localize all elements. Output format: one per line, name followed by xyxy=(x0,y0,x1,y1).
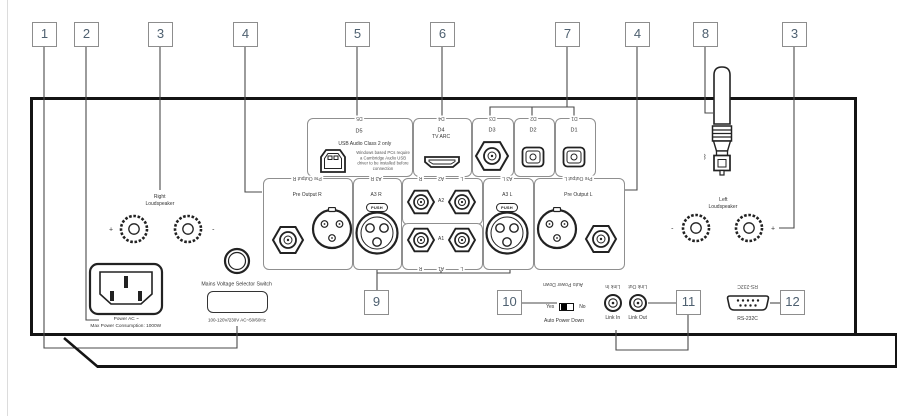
rca-connector-icon xyxy=(271,223,305,257)
coax-rca-connector-icon xyxy=(474,138,510,174)
d5-edge-label: D5 xyxy=(354,116,363,121)
a3-l-push-latch: PUSH xyxy=(496,203,518,212)
link-in-jack-icon xyxy=(602,292,624,314)
link-in-label: Link In xyxy=(606,316,621,321)
voltage-rating-label: 100-120V/230V AC~50/60Hz xyxy=(208,318,266,323)
callout-1: 1 xyxy=(32,22,57,47)
apd-no-label: No xyxy=(579,305,585,310)
d1-label: D1 xyxy=(570,128,577,133)
a1-r-edge-label: R xyxy=(418,266,425,271)
d5-driver-note: Windows based PCs require a Cambridge Au… xyxy=(356,150,410,171)
d5-label: D5 xyxy=(355,129,362,134)
right-speaker-label-2: Loudspeaker xyxy=(146,202,175,207)
rca-connector-icon xyxy=(406,225,436,255)
right-speaker-minus: - xyxy=(212,227,214,232)
binding-post-icon xyxy=(733,212,765,244)
rca-connector-icon xyxy=(584,222,618,256)
rca-connector-icon xyxy=(447,225,477,255)
auto-power-down-switch xyxy=(559,303,574,311)
link-out-edge-label: Link Out xyxy=(627,284,649,289)
right-speaker-plus: + xyxy=(109,227,113,232)
a3-l-label: A3 L xyxy=(502,193,512,198)
a3-r-label: A3 R xyxy=(370,193,381,198)
bluetooth-antenna-icon xyxy=(701,62,745,178)
a1-edge-label: A1 xyxy=(436,266,445,271)
d2-label: D2 xyxy=(529,128,536,133)
left-speaker-label-2: Loudspeaker xyxy=(709,205,738,210)
switch-knob xyxy=(561,304,567,310)
d3-edge-label: D3 xyxy=(487,116,496,121)
callout-4-right: 4 xyxy=(625,22,650,47)
link-out-jack-icon xyxy=(627,292,649,314)
a1-label: A1 xyxy=(438,237,444,242)
d2-edge-label: D2 xyxy=(528,116,537,121)
pre-output-r-edge-label: Pre Output R xyxy=(291,176,323,181)
callout-11: 11 xyxy=(676,290,701,315)
rca-connector-icon xyxy=(447,187,477,217)
pre-output-l-label: Pre Output L xyxy=(564,193,592,198)
rca-connector-icon xyxy=(406,187,436,217)
binding-post-icon xyxy=(172,213,204,245)
a2-r-edge-label: R xyxy=(418,176,425,181)
link-out-label: Link Out xyxy=(629,316,648,321)
d3-label: D3 xyxy=(488,128,495,133)
callout-2: 2 xyxy=(74,22,99,47)
pre-output-r-label: Pre Output R xyxy=(292,193,321,198)
xlr-male-connector-icon xyxy=(535,207,579,251)
a3-r-push-latch: PUSH xyxy=(366,203,388,212)
binding-post-icon xyxy=(680,212,712,244)
fuse-holder-icon xyxy=(223,247,251,275)
callout-12: 12 xyxy=(780,290,805,315)
d1-edge-label: D1 xyxy=(569,116,578,121)
rs232-label: RS-232C xyxy=(738,317,759,322)
pre-output-l-edge-label: Pre Output L xyxy=(562,176,593,181)
xlr-female-connector-icon xyxy=(354,210,400,256)
rs232-db9-connector-icon xyxy=(725,293,771,313)
a2-label: A2 xyxy=(438,199,444,204)
a1-l-edge-label: L xyxy=(459,266,465,271)
apd-yes-label: Yes xyxy=(546,305,554,310)
iec-power-inlet-icon xyxy=(88,262,164,316)
xlr-male-connector-icon xyxy=(310,207,354,251)
left-speaker-label-1: Left xyxy=(719,198,727,203)
power-consumption-label: Max Power Consumption: 1000W xyxy=(91,324,162,329)
a3-l-edge-label: A3 L xyxy=(500,176,513,181)
a3-r-edge-label: A3 R xyxy=(369,176,383,181)
hdmi-connector-icon xyxy=(423,155,461,169)
callout-4-left: 4 xyxy=(233,22,258,47)
voltage-selector-label: Mains Voltage Selector Switch xyxy=(202,282,273,287)
usb-b-connector-icon xyxy=(318,148,348,174)
a2-l-edge-label: L xyxy=(459,176,465,181)
rs232-edge-label: RS-232C xyxy=(736,284,760,289)
link-in-edge-label: Link In xyxy=(604,284,622,289)
callout-8: 8 xyxy=(693,22,718,47)
d4-edge-label: D4 xyxy=(436,116,445,121)
callout-3-left: 3 xyxy=(148,22,173,47)
voltage-selector-cover xyxy=(207,291,268,313)
right-speaker-label-1: Right xyxy=(154,195,166,200)
power-ac-label: Power AC ~ xyxy=(113,317,138,322)
callout-3-right: 3 xyxy=(782,22,807,47)
d4-label: D4 xyxy=(437,128,444,133)
toslink-connector-icon xyxy=(562,146,586,168)
toslink-connector-icon xyxy=(521,146,545,168)
apd-label: Auto Power Down xyxy=(544,319,584,324)
callout-9: 9 xyxy=(364,290,389,315)
d4-sub-label: TV ARC xyxy=(432,135,450,140)
callout-10: 10 xyxy=(497,290,522,315)
left-speaker-minus: - xyxy=(671,226,673,231)
callout-7: 7 xyxy=(555,22,580,47)
bluetooth-icon: ᛒ xyxy=(703,155,707,160)
a2-edge-label: A2 xyxy=(436,176,445,181)
xlr-female-connector-icon xyxy=(484,210,530,256)
d5-type-label: USB Audio Class 2 only xyxy=(339,142,392,147)
callout-5: 5 xyxy=(345,22,370,47)
apd-edge-label: Auto Power Down xyxy=(541,282,584,287)
callout-6: 6 xyxy=(430,22,455,47)
binding-post-icon xyxy=(118,213,150,245)
left-speaker-plus: + xyxy=(771,226,775,231)
rear-panel-diagram: D5 D4 D3 D2 D1 D5 USB Audio Class 2 only… xyxy=(0,0,906,416)
